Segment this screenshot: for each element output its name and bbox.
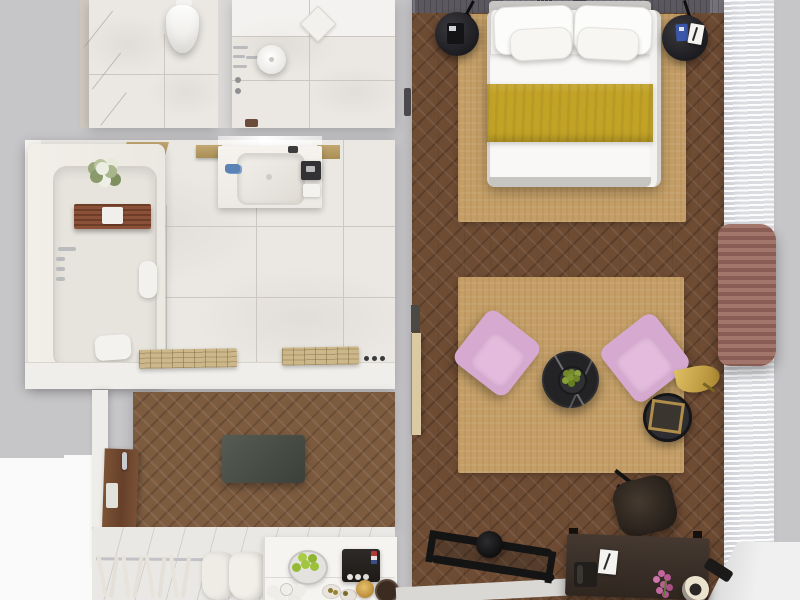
accent-drape [718, 224, 776, 366]
wall-bar [233, 55, 245, 58]
armchair-cushion [613, 334, 675, 396]
armchair-body [451, 307, 544, 400]
floor-plan [0, 0, 800, 600]
floor-spot [476, 531, 503, 558]
caddy-towel [102, 207, 123, 224]
door-handle [122, 452, 127, 470]
shower-accessory [245, 119, 258, 127]
tub-valve [56, 277, 65, 281]
wall-switch [404, 88, 411, 116]
wc-divider-wall [218, 0, 232, 128]
bathroom-grout [160, 297, 395, 298]
bathroom-grout [160, 226, 395, 227]
valve-knob [235, 77, 241, 83]
slatted-towel-rack [139, 348, 237, 369]
amenity-tray-glyph [306, 166, 315, 172]
shower-grout [232, 80, 395, 81]
wc-grout [89, 74, 218, 75]
tub-faucet [58, 247, 76, 251]
bed-pillow-small [509, 26, 573, 61]
armchair-body [597, 310, 692, 405]
wc-left-wall [80, 0, 89, 128]
mustard-runner [487, 84, 653, 142]
wall-hooks [364, 356, 369, 361]
fruit-bowl [558, 366, 587, 395]
slatted-towel-rack [282, 346, 359, 365]
tv-panel [222, 435, 305, 483]
open-door-leaf [411, 333, 421, 435]
outside-area [0, 455, 92, 600]
snack-bowl [340, 589, 357, 600]
sink-drain [266, 174, 272, 180]
shower-head-center [269, 57, 274, 62]
vanity-faucet [288, 146, 298, 153]
fruit-bowl-olives [567, 374, 574, 381]
phone-screen [449, 26, 456, 31]
bathrobe [229, 552, 266, 600]
amenity-box [303, 184, 320, 197]
door-stop [411, 305, 420, 332]
outside-area [0, 380, 64, 458]
apples [301, 560, 310, 569]
desk-phone-handset [577, 565, 583, 584]
wall-bar [233, 65, 247, 68]
armchair-cushion [468, 331, 527, 390]
picture-frame [648, 399, 685, 434]
water-glasses [280, 583, 293, 596]
wc-grout [164, 34, 165, 128]
blue-toiletries [225, 164, 240, 173]
bed-pillow-small [576, 26, 640, 61]
door-plate [106, 483, 118, 508]
olive-garnish [328, 588, 333, 593]
desk-lamp [682, 576, 709, 600]
coffee-machine-label [371, 551, 377, 564]
flower-bouquet [96, 162, 109, 175]
valve-knob [235, 88, 241, 94]
tub-valve [56, 257, 65, 261]
coffee-cups [347, 574, 353, 580]
armchair-left [455, 311, 543, 403]
blue-book-label [679, 27, 684, 31]
headrest-towel [139, 261, 157, 298]
armchair-right [600, 314, 692, 406]
tub-valve [56, 267, 65, 271]
flower-vase [658, 570, 665, 577]
bed-foot-rail [489, 177, 651, 187]
bath-pillow [94, 334, 132, 361]
wall-bar [233, 46, 248, 49]
gold-plate [356, 580, 374, 598]
